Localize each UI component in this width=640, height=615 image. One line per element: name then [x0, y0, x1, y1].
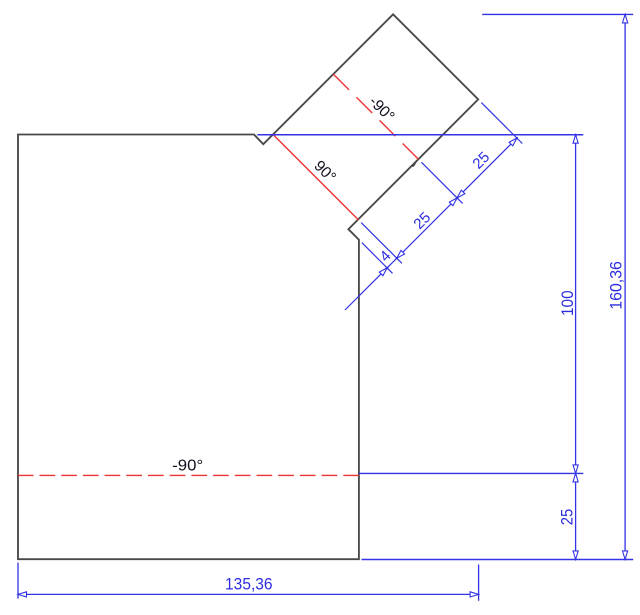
svg-text:160,36: 160,36: [607, 261, 626, 310]
svg-text:-90°: -90°: [172, 457, 203, 474]
svg-text:100: 100: [558, 290, 577, 316]
svg-text:25: 25: [557, 509, 576, 526]
svg-text:135,36: 135,36: [225, 574, 273, 593]
